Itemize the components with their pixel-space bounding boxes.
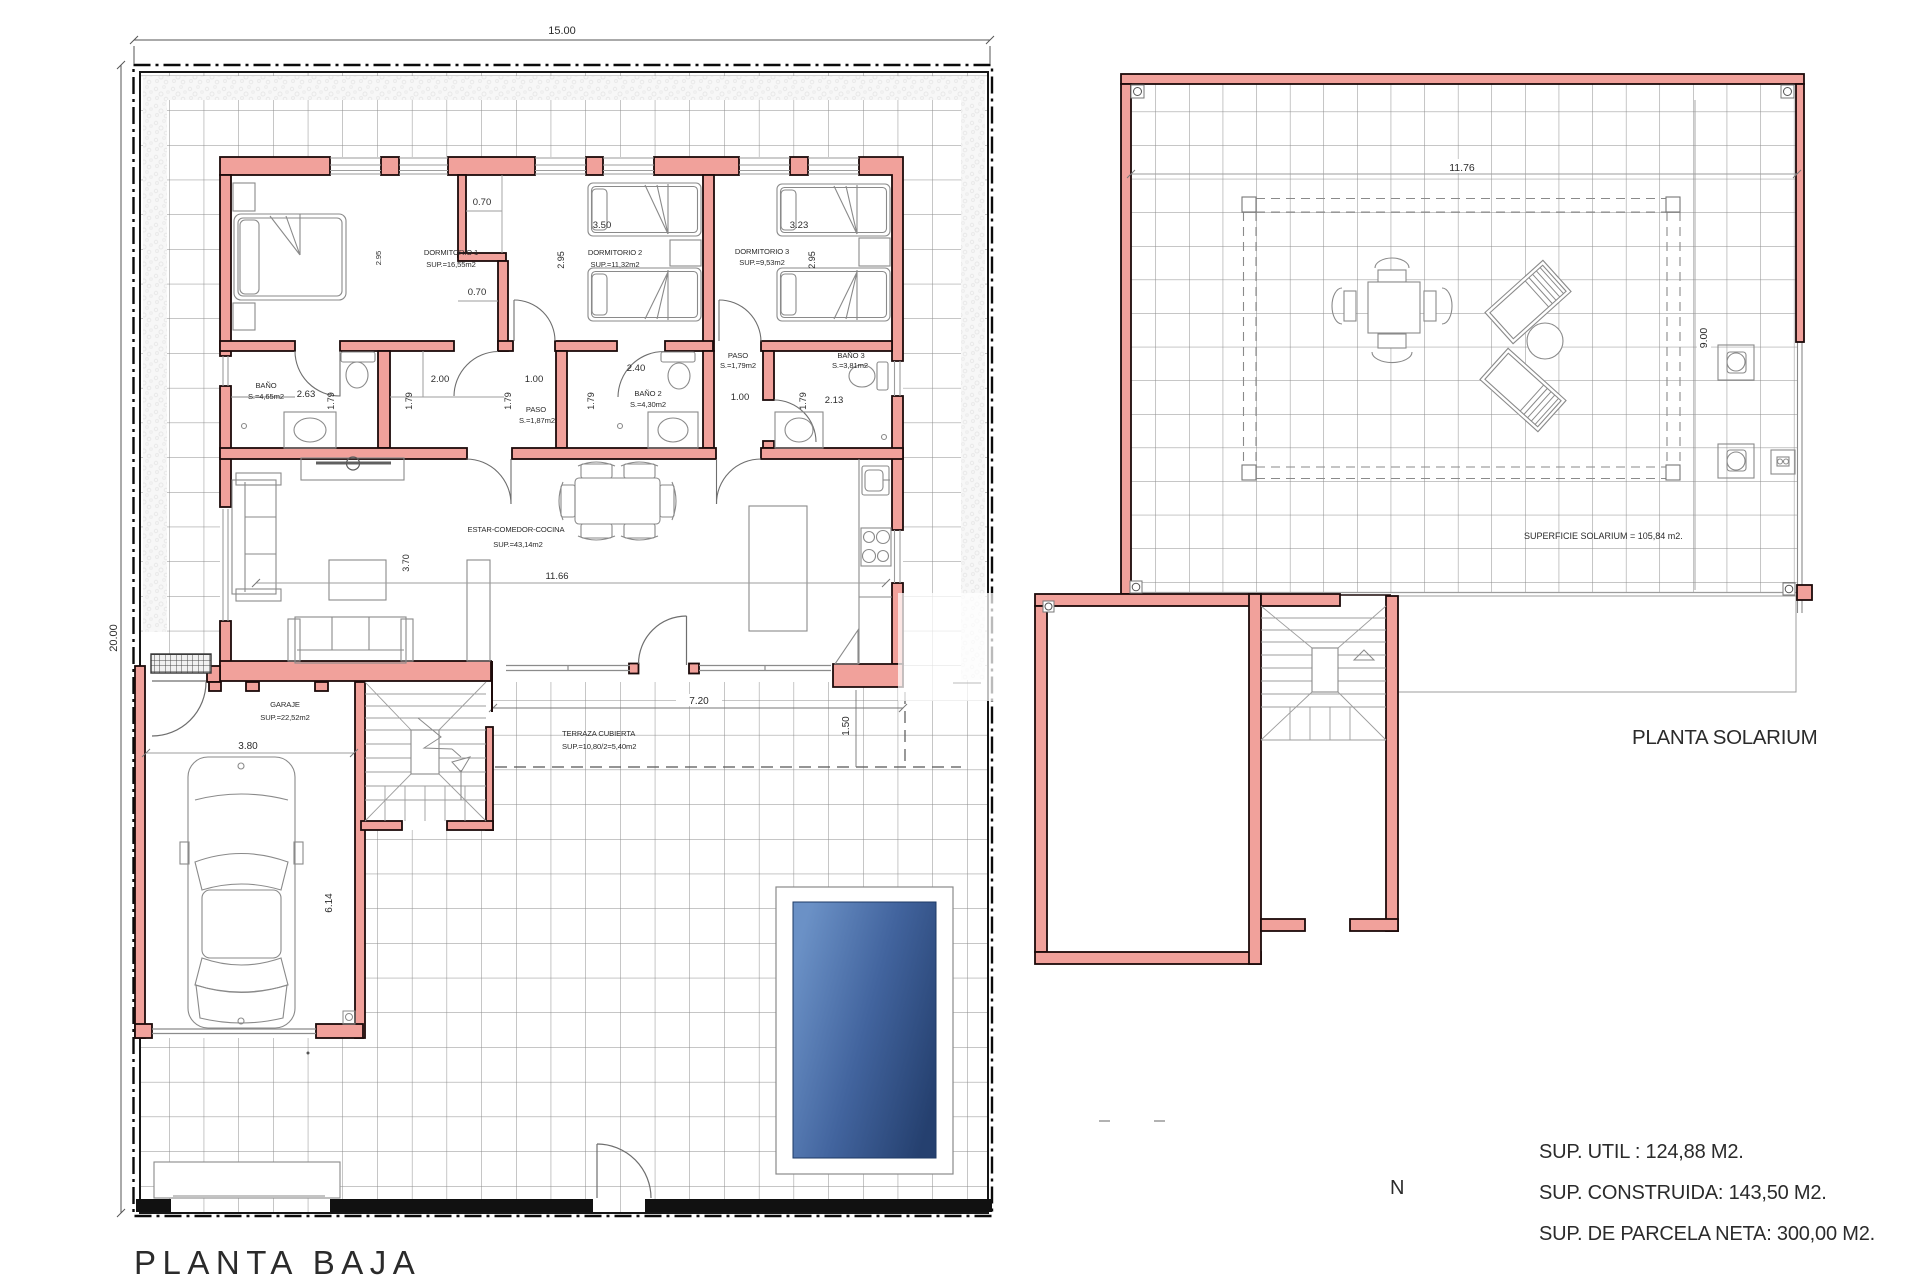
svg-text:DORMITORIO 3: DORMITORIO 3 — [735, 247, 789, 256]
svg-text:SUP.=9,53m2: SUP.=9,53m2 — [739, 258, 784, 267]
svg-text:7.20: 7.20 — [689, 696, 709, 707]
svg-text:N: N — [1390, 1177, 1404, 1199]
svg-text:S.=3,81m2: S.=3,81m2 — [832, 361, 868, 370]
svg-text:1.79: 1.79 — [404, 392, 414, 410]
svg-text:TERRAZA CUBIERTA: TERRAZA CUBIERTA — [562, 729, 636, 738]
svg-text:PASO: PASO — [526, 405, 546, 414]
svg-text:3.50: 3.50 — [593, 220, 612, 231]
svg-text:3.70: 3.70 — [401, 554, 411, 572]
svg-text:SUP.=22,52m2: SUP.=22,52m2 — [260, 713, 310, 722]
svg-text:SUPERFICIE SOLARIUM = 105,84 m: SUPERFICIE SOLARIUM = 105,84 m2. — [1524, 531, 1683, 541]
svg-text:1.79: 1.79 — [798, 392, 808, 410]
svg-text:2.13: 2.13 — [825, 395, 844, 406]
svg-text:S.=4,65m2: S.=4,65m2 — [248, 392, 284, 401]
svg-text:15.00: 15.00 — [548, 25, 576, 37]
svg-text:SUP.=11,32m2: SUP.=11,32m2 — [591, 260, 640, 269]
svg-text:3.23: 3.23 — [790, 220, 809, 231]
svg-text:BAÑO 3: BAÑO 3 — [837, 351, 864, 360]
svg-text:1.50: 1.50 — [841, 716, 852, 736]
svg-text:BAÑO 2: BAÑO 2 — [634, 389, 661, 398]
svg-text:SUP.=10,80/2=5,40m2: SUP.=10,80/2=5,40m2 — [562, 742, 636, 751]
svg-text:PLANTA SOLARIUM: PLANTA SOLARIUM — [1632, 726, 1817, 749]
svg-text:20.00: 20.00 — [108, 624, 120, 652]
svg-text:PLANTA BAJA: PLANTA BAJA — [134, 1244, 421, 1280]
svg-text:1.79: 1.79 — [503, 392, 513, 410]
svg-text:SUP. UTIL : 124,88 M2.: SUP. UTIL : 124,88 M2. — [1539, 1141, 1744, 1163]
svg-text:S.=4,30m2: S.=4,30m2 — [630, 400, 666, 409]
svg-text:DORMITORIO 2: DORMITORIO 2 — [588, 248, 642, 257]
svg-text:1.79: 1.79 — [586, 392, 596, 410]
svg-text:SUP.=43,14m2: SUP.=43,14m2 — [493, 540, 543, 549]
svg-text:DORMITORIO 1: DORMITORIO 1 — [424, 248, 478, 257]
svg-text:6.14: 6.14 — [324, 893, 335, 913]
svg-text:2.95: 2.95 — [374, 251, 383, 265]
svg-text:11.76: 11.76 — [1449, 162, 1475, 174]
svg-text:2.00: 2.00 — [431, 374, 450, 385]
svg-text:BAÑO: BAÑO — [255, 381, 276, 390]
svg-text:1.79: 1.79 — [326, 392, 336, 410]
svg-text:3.80: 3.80 — [238, 741, 258, 752]
svg-text:2.95: 2.95 — [807, 251, 817, 269]
svg-text:S.=1,79m2: S.=1,79m2 — [720, 361, 756, 370]
svg-text:1.00: 1.00 — [525, 374, 544, 385]
svg-text:PASO: PASO — [728, 351, 748, 360]
svg-text:ESTAR-COMEDOR-COCINA: ESTAR-COMEDOR-COCINA — [467, 525, 565, 534]
svg-text:9.00: 9.00 — [1698, 328, 1710, 349]
svg-text:11.66: 11.66 — [545, 571, 568, 582]
svg-text:SUP. DE PARCELA NETA: 300,00 M: SUP. DE PARCELA NETA: 300,00 M2. — [1539, 1223, 1875, 1245]
svg-text:2.63: 2.63 — [297, 389, 316, 400]
svg-text:SUP.=16,55m2: SUP.=16,55m2 — [426, 260, 476, 269]
svg-text:2.95: 2.95 — [556, 251, 566, 269]
svg-text:GARAJE: GARAJE — [270, 700, 300, 709]
svg-text:1.00: 1.00 — [731, 392, 750, 403]
svg-text:S.=1,87m2: S.=1,87m2 — [519, 416, 555, 425]
svg-text:2.40: 2.40 — [627, 363, 646, 374]
svg-text:0.70: 0.70 — [473, 197, 492, 208]
svg-text:SUP. CONSTRUIDA: 143,50 M2.: SUP. CONSTRUIDA: 143,50 M2. — [1539, 1182, 1827, 1204]
svg-text:0.70: 0.70 — [468, 287, 487, 298]
